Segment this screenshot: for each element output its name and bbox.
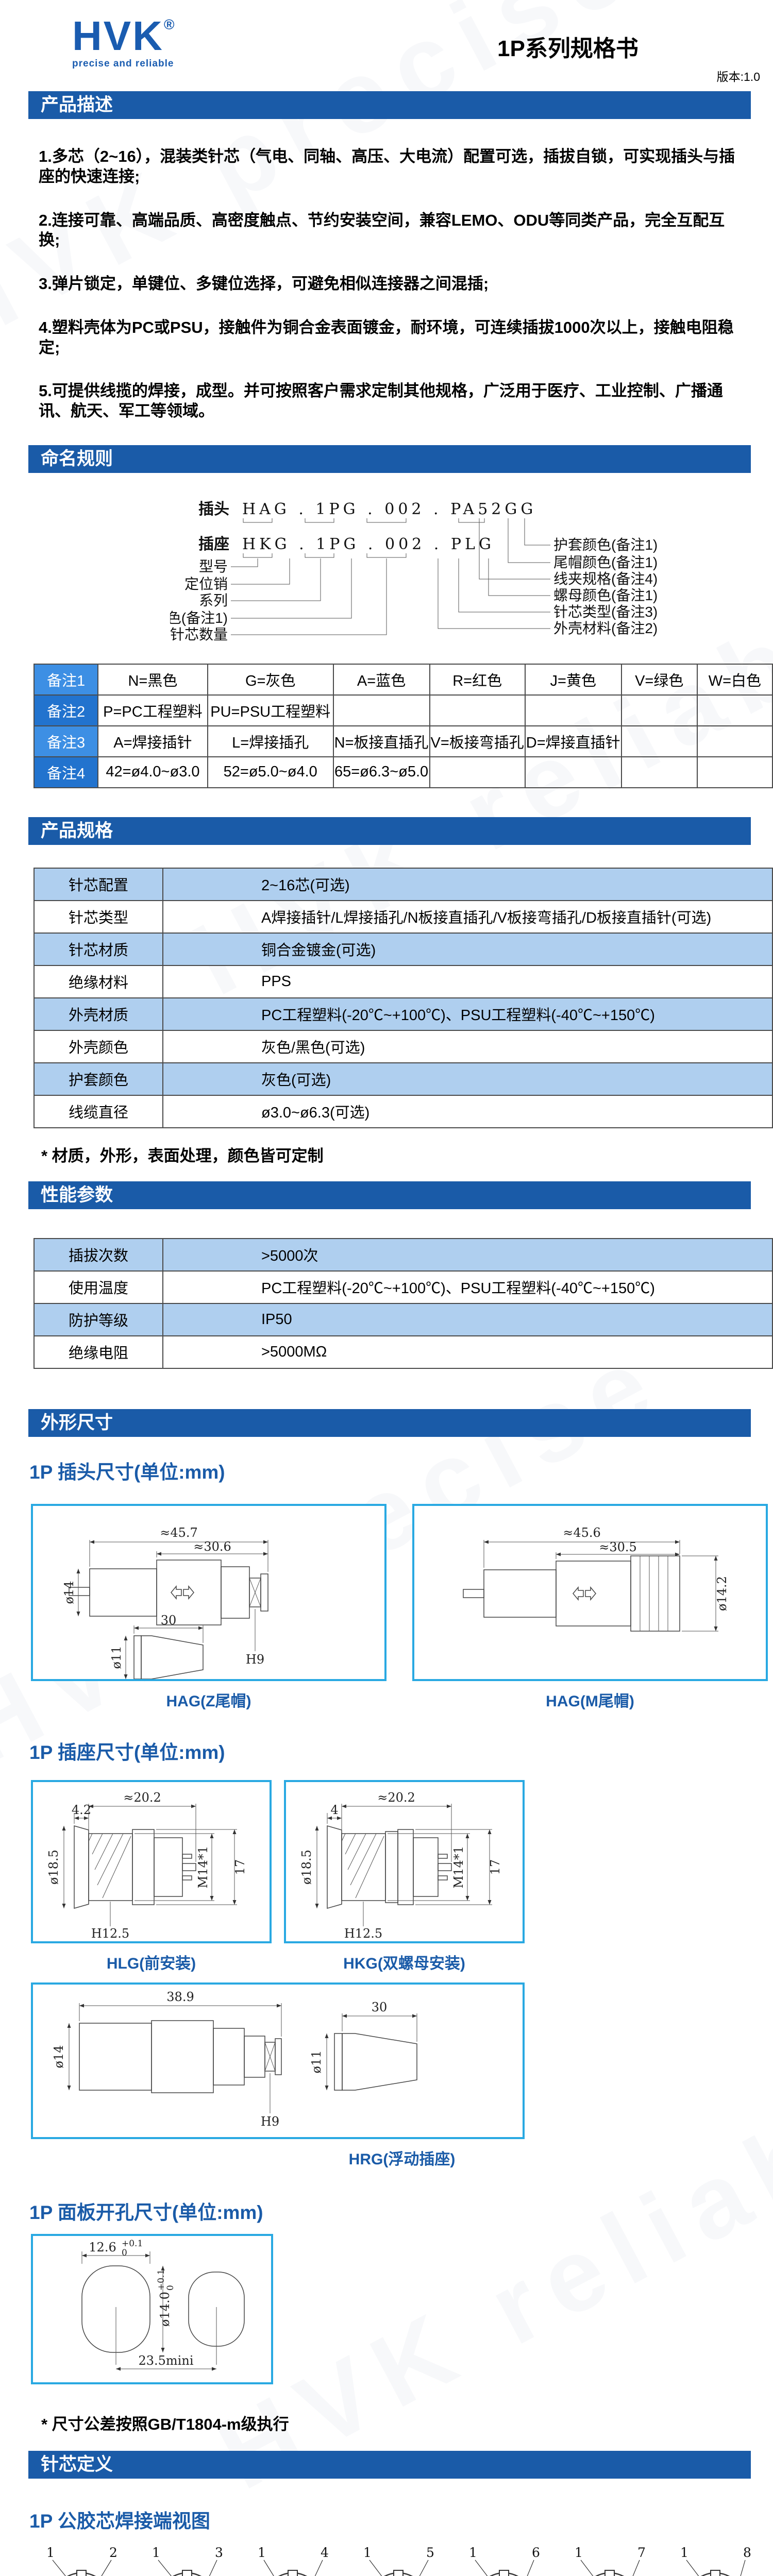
remark-cell <box>525 757 621 788</box>
dim-label: H12.5 <box>91 1926 129 1941</box>
remark-cell <box>697 695 772 726</box>
drawing-caption: HLG(前安装) <box>31 1951 272 1973</box>
description-item: 4.塑料壳体为PC或PSU，接触件为铜合金表面镀金，耐环境，可连续插拔1000次… <box>39 318 742 358</box>
remark-cell: 65=ø6.3~ø5.0 <box>333 757 430 788</box>
table-row: 插拔次数>5000次 <box>34 1239 772 1271</box>
pin-number-label: 1 <box>680 2547 688 2560</box>
pin-number-label: 7 <box>637 2547 646 2560</box>
row-value: 灰色(可选) <box>163 1063 772 1095</box>
dim-label: ø18.5 <box>46 1850 61 1885</box>
pin-face-drawing: 12 <box>30 2547 136 2576</box>
row-label: 针芯类型 <box>34 901 163 933</box>
description-item: 5.可提供线揽的焊接，成型。并可按照客户需求定制其他规格，广泛用于医疗、工业控制… <box>39 381 742 421</box>
dim-label: ≈30.5 <box>599 1540 637 1554</box>
row-label: 外壳颜色 <box>34 1030 163 1063</box>
table-row: 使用温度PC工程塑料(-20℃~+100℃)、PSU工程塑料(-40℃~+150… <box>34 1271 772 1303</box>
dim-label: 23.5mini <box>138 2353 193 2368</box>
male-pin-heading: 1P 公胶芯焊接端视图 <box>29 2505 773 2533</box>
remark-cell <box>525 695 621 726</box>
socket-code: HKG . 1PG . 002 . PLG <box>242 535 495 553</box>
row-label: 绝缘材料 <box>34 965 163 998</box>
dim-tolerance: +0.1 <box>122 2239 143 2249</box>
row-value: >5000次 <box>163 1239 772 1271</box>
drawing-caption: HAG(M尾帽) <box>412 1688 768 1711</box>
tolerance-note: * 尺寸公差按照GB/T1804-m级执行 <box>41 2411 773 2434</box>
remarks-table: 备注1N=黑色G=灰色A=蓝色R=红色J=黄色V=绿色W=白色备注2P=PC工程… <box>33 664 773 788</box>
dim-label: 30 <box>372 2000 388 2014</box>
dim-label: ≈20.2 <box>377 1790 415 1805</box>
pin-face-drawing: 13 <box>136 2547 241 2576</box>
pin-number-label: 1 <box>258 2547 266 2560</box>
table-row: 外壳颜色灰色/黑色(可选) <box>34 1030 772 1063</box>
logo-text: HVK <box>72 13 164 59</box>
remark-cell: R=红色 <box>430 664 525 695</box>
remarks-row: 备注2P=PC工程塑料PU=PSU工程塑料 <box>34 695 772 726</box>
section-bar-product-spec: 产品规格 <box>28 817 751 845</box>
hkg-drawing: ≈20.2 4 ø18.5 M14*1 17 H12.5 <box>286 1782 523 1941</box>
socket-label: 插座 <box>198 535 229 553</box>
naming-left-label: 外壳颜色(备注1) <box>170 610 228 626</box>
dim-label: ≈30.6 <box>193 1539 231 1554</box>
naming-right-label: 螺母颜色(备注1) <box>553 587 658 603</box>
section-bar-product-description: 产品描述 <box>28 91 751 119</box>
row-value: A焊接插针/L焊接插孔/N板接直插孔/V板接弯插孔/D板接直插针(可选) <box>163 901 772 933</box>
section-bar-performance: 性能参数 <box>28 1181 751 1209</box>
remark-label: 备注2 <box>34 695 98 726</box>
registered-mark-icon: ® <box>164 16 175 32</box>
remark-cell: V=板接弯插孔 <box>430 726 525 757</box>
dim-label: ≈20.2 <box>123 1790 161 1805</box>
drawing-box-hag-z: ≈45.7 ≈30.6 ø14 H9 30 ø <box>31 1504 386 1681</box>
table-row: 针芯配置2~16芯(可选) <box>34 868 772 901</box>
row-value: 铜合金镀金(可选) <box>163 933 772 965</box>
row-label: 绝缘电阻 <box>34 1336 163 1368</box>
remarks-row: 备注442=ø4.0~ø3.052=ø5.0~ø4.065=ø6.3~ø5.0 <box>34 757 772 788</box>
row-value: ø3.0~ø6.3(可选) <box>163 1095 772 1128</box>
remarks-row: 备注1N=黑色G=灰色A=蓝色R=红色J=黄色V=绿色W=白色 <box>34 664 772 695</box>
pin-number-label: 1 <box>363 2547 372 2560</box>
pin-face-drawing: 18 <box>664 2547 769 2576</box>
remark-cell <box>333 695 430 726</box>
naming-left-label: 系列 <box>199 592 228 608</box>
remark-cell <box>621 726 697 757</box>
hrg-drawing: 38.9 ø14 H9 30 ø11 <box>33 1985 523 2137</box>
pin-number-label: 5 <box>426 2547 434 2560</box>
description-item: 1.多芯（2~16），混装类针芯（气电、同轴、高压、大电流）配置可选，插拔自锁，… <box>39 147 742 187</box>
row-label: 外壳材质 <box>34 998 163 1030</box>
row-value: 2~16芯(可选) <box>163 868 772 901</box>
dim-label: 17 <box>233 1859 247 1875</box>
dim-label: ø11 <box>309 2050 324 2073</box>
row-value: PC工程塑料(-20℃~+100℃)、PSU工程塑料(-40℃~+150℃) <box>163 1271 772 1303</box>
row-label: 使用温度 <box>34 1271 163 1303</box>
pin-diagram-2-male: 12公针芯焊接端焊接排序图 <box>30 2547 136 2576</box>
naming-right-label: 尾帽颜色(备注1) <box>553 554 658 570</box>
drawing-box-hlg: ≈20.2 4.2 ø18.5 M14*1 17 H12.5 <box>31 1780 272 1943</box>
naming-left-label: 型号 <box>199 558 228 574</box>
table-row: 线缆直径ø3.0~ø6.3(可选) <box>34 1095 772 1128</box>
dim-label: H12.5 <box>344 1926 382 1941</box>
remark-cell: D=焊接直插针 <box>525 726 621 757</box>
drawing-box-hrg: 38.9 ø14 H9 30 ø11 <box>31 1982 525 2139</box>
product-spec-table: 针芯配置2~16芯(可选)针芯类型A焊接插针/L焊接插孔/N板接直插孔/V板接弯… <box>33 868 773 1128</box>
panel-cutout-drawing: 12.6 +0.1 0 ø14.0 +0.1 0 23.5mini <box>33 2236 271 2382</box>
pin-diagram-4-male: 14公针芯焊接端焊接排序图 <box>241 2547 347 2576</box>
male-pin-row-1: 12公针芯焊接端焊接排序图13公针芯焊接端焊接排序图14公针芯焊接端焊接排序图1… <box>30 2547 773 2576</box>
drawing-box-hag-m: ≈45.6 ≈30.5 ø14.2 <box>412 1504 768 1681</box>
naming-right-label: 外壳材料(备注2) <box>553 620 658 636</box>
pin-diagram-7-male: 17公针芯焊接端焊接排序图 <box>558 2547 664 2576</box>
remark-cell <box>621 695 697 726</box>
dim-label: 30 <box>161 1613 177 1628</box>
drawing-block-hag-m: ≈45.6 ≈30.5 ø14.2 HAG(M尾帽) <box>412 1504 768 1711</box>
dim-label: 4 <box>330 1803 338 1817</box>
pin-face-drawing: 15 <box>347 2547 452 2576</box>
remark-cell: PU=PSU工程塑料 <box>208 695 333 726</box>
section-bar-dimensions: 外形尺寸 <box>28 1409 751 1437</box>
pin-diagram-6-male: 16公针芯焊接端焊接排序图 <box>452 2547 558 2576</box>
table-row: 防护等级IP50 <box>34 1303 772 1336</box>
dim-label: 38.9 <box>166 1990 194 2004</box>
dim-label: ≈45.6 <box>563 1526 601 1540</box>
remark-cell <box>430 757 525 788</box>
remark-cell: A=焊接插针 <box>98 726 208 757</box>
drawing-block-hrg: 38.9 ø14 H9 30 ø11 HRG(浮动插座) <box>31 1982 773 2169</box>
pin-diagram-8-male: 18公针芯焊接端焊接排序图 <box>664 2547 769 2576</box>
row-label: 针芯配置 <box>34 868 163 901</box>
version-label: 版本:1.0 <box>717 67 760 84</box>
performance-table: 插拔次数>5000次使用温度PC工程塑料(-20℃~+100℃)、PSU工程塑料… <box>33 1238 773 1369</box>
drawing-box-hkg: ≈20.2 4 ø18.5 M14*1 17 H12.5 <box>284 1780 525 1943</box>
remark-cell <box>621 757 697 788</box>
panel-dim-heading: 1P 面板开孔尺寸(单位:mm) <box>29 2197 773 2225</box>
table-row: 外壳材质PC工程塑料(-20℃~+100℃)、PSU工程塑料(-40℃~+150… <box>34 998 772 1030</box>
pin-number-label: 1 <box>152 2547 160 2560</box>
remark-cell: N=黑色 <box>98 664 208 695</box>
dim-label: ø11 <box>109 1646 124 1669</box>
row-value: 灰色/黑色(可选) <box>163 1030 772 1063</box>
naming-right-label: 护套颜色(备注1) <box>553 537 658 553</box>
plug-code: HAG . 1PG . 002 . PA52GG <box>242 500 536 518</box>
plug-label: 插头 <box>198 501 229 518</box>
dim-tolerance: 0 <box>165 2285 176 2291</box>
hag-m-drawing: ≈45.6 ≈30.5 ø14.2 <box>414 1506 766 1679</box>
hag-z-drawing: ≈45.7 ≈30.6 ø14 H9 30 ø <box>33 1506 384 1679</box>
naming-right-label: 线夹规格(备注4) <box>553 571 658 587</box>
row-value: >5000MΩ <box>163 1336 772 1368</box>
drawing-block-hlg: ≈20.2 4.2 ø18.5 M14*1 17 H12.5 <box>31 1780 272 1973</box>
remark-cell: P=PC工程塑料 <box>98 695 208 726</box>
pin-face-drawing: 17 <box>558 2547 664 2576</box>
pin-face-drawing: 14 <box>241 2547 347 2576</box>
dim-label: ø14 <box>62 1581 76 1604</box>
remark-cell: A=蓝色 <box>333 664 430 695</box>
pin-number-label: 8 <box>743 2547 751 2560</box>
remark-cell: J=黄色 <box>525 664 621 695</box>
header: HVK® precise and reliable 1P系列规格书 版本:1.0 <box>0 0 773 91</box>
remark-cell: W=白色 <box>697 664 772 695</box>
dim-label: 12.6 <box>89 2240 116 2255</box>
remark-cell <box>697 726 772 757</box>
remark-label: 备注1 <box>34 664 98 695</box>
row-label: 护套颜色 <box>34 1063 163 1095</box>
dim-label: H9 <box>246 1652 264 1667</box>
dim-label: ø18.5 <box>299 1850 314 1885</box>
row-label: 针芯材质 <box>34 933 163 965</box>
spec-sheet-page: HVK precise HVK reliable HVK precise HVK… <box>0 0 773 2576</box>
dim-label: ø14.0 <box>158 2292 172 2327</box>
row-value: IP50 <box>163 1303 772 1336</box>
section-bar-naming-rule: 命名规则 <box>28 445 751 473</box>
table-row: 绝缘电阻>5000MΩ <box>34 1336 772 1368</box>
description-item: 2.连接可靠、高端品质、高密度触点、节约安装空间，兼容LEMO、ODU等同类产品… <box>39 211 742 251</box>
dim-label: H9 <box>261 2114 279 2129</box>
description-item: 3.弹片锁定，单键位、多键位选择，可避免相似连接器之间混插; <box>39 274 742 294</box>
pin-number-label: 1 <box>46 2547 55 2560</box>
remark-cell <box>430 695 525 726</box>
remark-cell <box>697 757 772 788</box>
dim-label: 17 <box>488 1859 502 1875</box>
pin-number-label: 1 <box>575 2547 583 2560</box>
dim-label: ø14.2 <box>715 1576 729 1611</box>
spec-note: * 材质，外形，表面处理，颜色皆可定制 <box>41 1143 773 1166</box>
remark-cell: L=焊接插孔 <box>208 726 333 757</box>
drawing-block-hkg: ≈20.2 4 ø18.5 M14*1 17 H12.5 <box>284 1780 525 1973</box>
hlg-drawing: ≈20.2 4.2 ø18.5 M14*1 17 H12.5 <box>33 1782 270 1941</box>
remarks-row: 备注3A=焊接插针L=焊接插孔N=板接直插孔V=板接弯插孔D=焊接直插针 <box>34 726 772 757</box>
pin-number-label: 4 <box>321 2547 329 2560</box>
section-bar-pin-definition: 针芯定义 <box>28 2451 751 2479</box>
remark-cell: 42=ø4.0~ø3.0 <box>98 757 208 788</box>
table-row: 针芯材质铜合金镀金(可选) <box>34 933 772 965</box>
pin-diagram-5-male: 15公针芯焊接端焊接排序图 <box>347 2547 452 2576</box>
row-label: 线缆直径 <box>34 1095 163 1128</box>
drawing-block-hag-z: ≈45.7 ≈30.6 ø14 H9 30 ø <box>31 1504 386 1711</box>
pin-number-label: 6 <box>532 2547 540 2560</box>
naming-left-label: 针芯数量 <box>170 626 228 642</box>
description-list: 1.多芯（2~16），混装类针芯（气电、同轴、高压、大电流）配置可选，插拔自锁，… <box>39 147 742 421</box>
remark-cell: V=绿色 <box>621 664 697 695</box>
pin-number-label: 1 <box>469 2547 477 2560</box>
remark-cell: 52=ø5.0~ø4.0 <box>208 757 333 788</box>
pin-diagram-3-male: 13公针芯焊接端焊接排序图 <box>136 2547 241 2576</box>
dim-label: M14*1 <box>196 1846 210 1888</box>
pin-number-label: 2 <box>109 2547 117 2560</box>
table-row: 护套颜色灰色(可选) <box>34 1063 772 1095</box>
drawing-caption: HAG(Z尾帽) <box>31 1688 386 1711</box>
socket-dim-heading: 1P 插座尺寸(单位:mm) <box>29 1737 773 1765</box>
dim-tolerance: +0.1 <box>156 2269 166 2290</box>
naming-right-label: 针芯类型(备注3) <box>553 604 658 620</box>
table-row: 针芯类型A焊接插针/L焊接插孔/N板接直插孔/V板接弯插孔/D板接直插针(可选) <box>34 901 772 933</box>
remark-cell: N=板接直插孔 <box>333 726 430 757</box>
drawing-box-panel: 12.6 +0.1 0 ø14.0 +0.1 0 23.5mini <box>31 2234 273 2384</box>
naming-left-label: 定位销 <box>184 576 228 592</box>
remark-label: 备注3 <box>34 726 98 757</box>
pin-number-label: 3 <box>215 2547 223 2560</box>
drawing-caption: HKG(双螺母安装) <box>284 1951 525 1973</box>
pin-face-drawing: 16 <box>452 2547 558 2576</box>
page-title: 1P系列规格书 <box>497 30 638 63</box>
table-row: 绝缘材料PPS <box>34 965 772 998</box>
hvk-logo: HVK® precise and reliable <box>72 15 175 69</box>
row-label: 插拔次数 <box>34 1239 163 1271</box>
row-value: PPS <box>163 965 772 998</box>
remark-label: 备注4 <box>34 757 98 788</box>
naming-diagram: 插头 HAG . 1PG . 002 . PA52GG 插座 HKG . 1PG… <box>170 496 716 655</box>
plug-dim-heading: 1P 插头尺寸(单位:mm) <box>29 1456 773 1484</box>
drawing-caption: HRG(浮动插座) <box>31 2146 773 2169</box>
row-value: PC工程塑料(-20℃~+100℃)、PSU工程塑料(-40℃~+150℃) <box>163 998 772 1030</box>
row-label: 防护等级 <box>34 1303 163 1336</box>
dim-label: ø14 <box>52 2045 66 2068</box>
dim-label: M14*1 <box>451 1846 466 1888</box>
dim-label: 4.2 <box>72 1803 91 1817</box>
remark-cell: G=灰色 <box>208 664 333 695</box>
dim-tolerance: 0 <box>122 2248 127 2258</box>
logo-tagline: precise and reliable <box>72 59 175 69</box>
dim-label: ≈45.7 <box>160 1526 198 1540</box>
